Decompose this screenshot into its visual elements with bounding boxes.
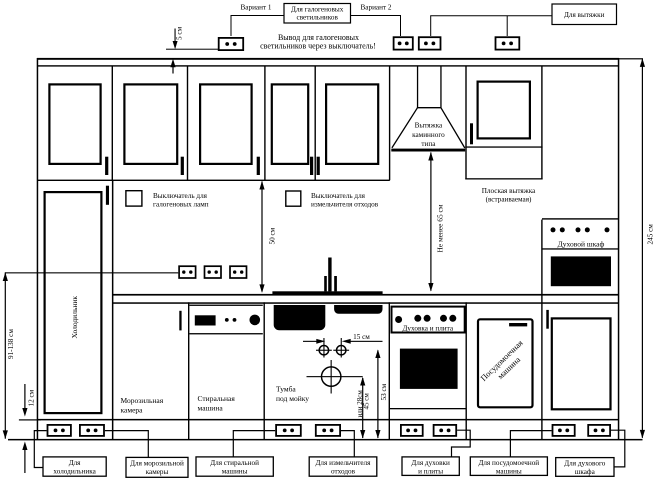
svg-text:Плоская вытяжка: Плоская вытяжка — [482, 187, 536, 195]
svg-text:машина: машина — [198, 403, 224, 412]
svg-text:53 см: 53 см — [380, 383, 388, 400]
svg-text:светильников: светильников — [297, 14, 339, 22]
svg-text:91-138 см: 91-138 см — [7, 329, 15, 359]
svg-text:Для морозильной: Для морозильной — [130, 460, 184, 468]
svg-text:или 28см: или 28см — [356, 390, 364, 418]
svg-text:Для стиральной: Для стиральной — [210, 459, 259, 467]
svg-text:светильников через выключатель: светильников через выключатель! — [260, 42, 376, 51]
svg-text:Для духовки: Для духовки — [411, 459, 450, 467]
svg-text:50 см: 50 см — [269, 227, 277, 244]
svg-text:Вытяжка: Вытяжка — [415, 122, 443, 130]
svg-text:5 см: 5 см — [176, 26, 184, 40]
svg-text:каминного: каминного — [412, 131, 445, 139]
svg-text:245 см: 245 см — [647, 224, 655, 245]
svg-text:Для: Для — [69, 459, 81, 467]
svg-text:машины: машины — [222, 468, 248, 476]
svg-text:Для вытяжки: Для вытяжки — [564, 11, 605, 19]
svg-text:камеры: камеры — [146, 468, 169, 476]
svg-text:Духовка и плита: Духовка и плита — [403, 324, 454, 332]
svg-text:Не менее 65 см: Не менее 65 см — [436, 204, 445, 252]
svg-text:12 см: 12 см — [27, 389, 35, 406]
svg-text:камера: камера — [121, 405, 144, 414]
svg-text:холодильника: холодильника — [53, 468, 96, 476]
svg-text:Для посудомоечной: Для посудомоечной — [478, 459, 539, 467]
svg-text:Холодильник: Холодильник — [70, 296, 79, 339]
svg-text:машины: машины — [496, 468, 522, 476]
svg-text:галогеновых ламп: галогеновых ламп — [153, 201, 209, 209]
svg-text:Вариант 1: Вариант 1 — [241, 4, 272, 12]
svg-text:Морозильная: Морозильная — [121, 396, 164, 405]
svg-text:(встраиваемая): (встраиваемая) — [486, 195, 532, 203]
svg-text:Выключатель для: Выключатель для — [153, 192, 208, 200]
svg-text:Тумба: Тумба — [276, 385, 296, 394]
svg-text:Стиральная: Стиральная — [198, 394, 236, 403]
svg-text:отходов: отходов — [331, 468, 356, 476]
svg-text:Выключатель для: Выключатель для — [311, 192, 366, 200]
svg-text:Для галогеновых: Для галогеновых — [291, 5, 344, 13]
svg-text:Вариант 2: Вариант 2 — [361, 4, 392, 12]
svg-text:измельчителя отходов: измельчителя отходов — [311, 201, 379, 209]
svg-text:Для духового: Для духового — [564, 460, 605, 468]
svg-text:под мойку: под мойку — [276, 394, 309, 403]
svg-text:шкафа: шкафа — [575, 468, 596, 476]
svg-text:и плиты: и плиты — [418, 468, 443, 476]
svg-text:Духовой шкаф: Духовой шкаф — [558, 239, 605, 248]
svg-text:типа: типа — [421, 140, 436, 148]
svg-text:15 см: 15 см — [353, 333, 370, 341]
svg-text:Для измельчителя: Для измельчителя — [316, 459, 372, 467]
